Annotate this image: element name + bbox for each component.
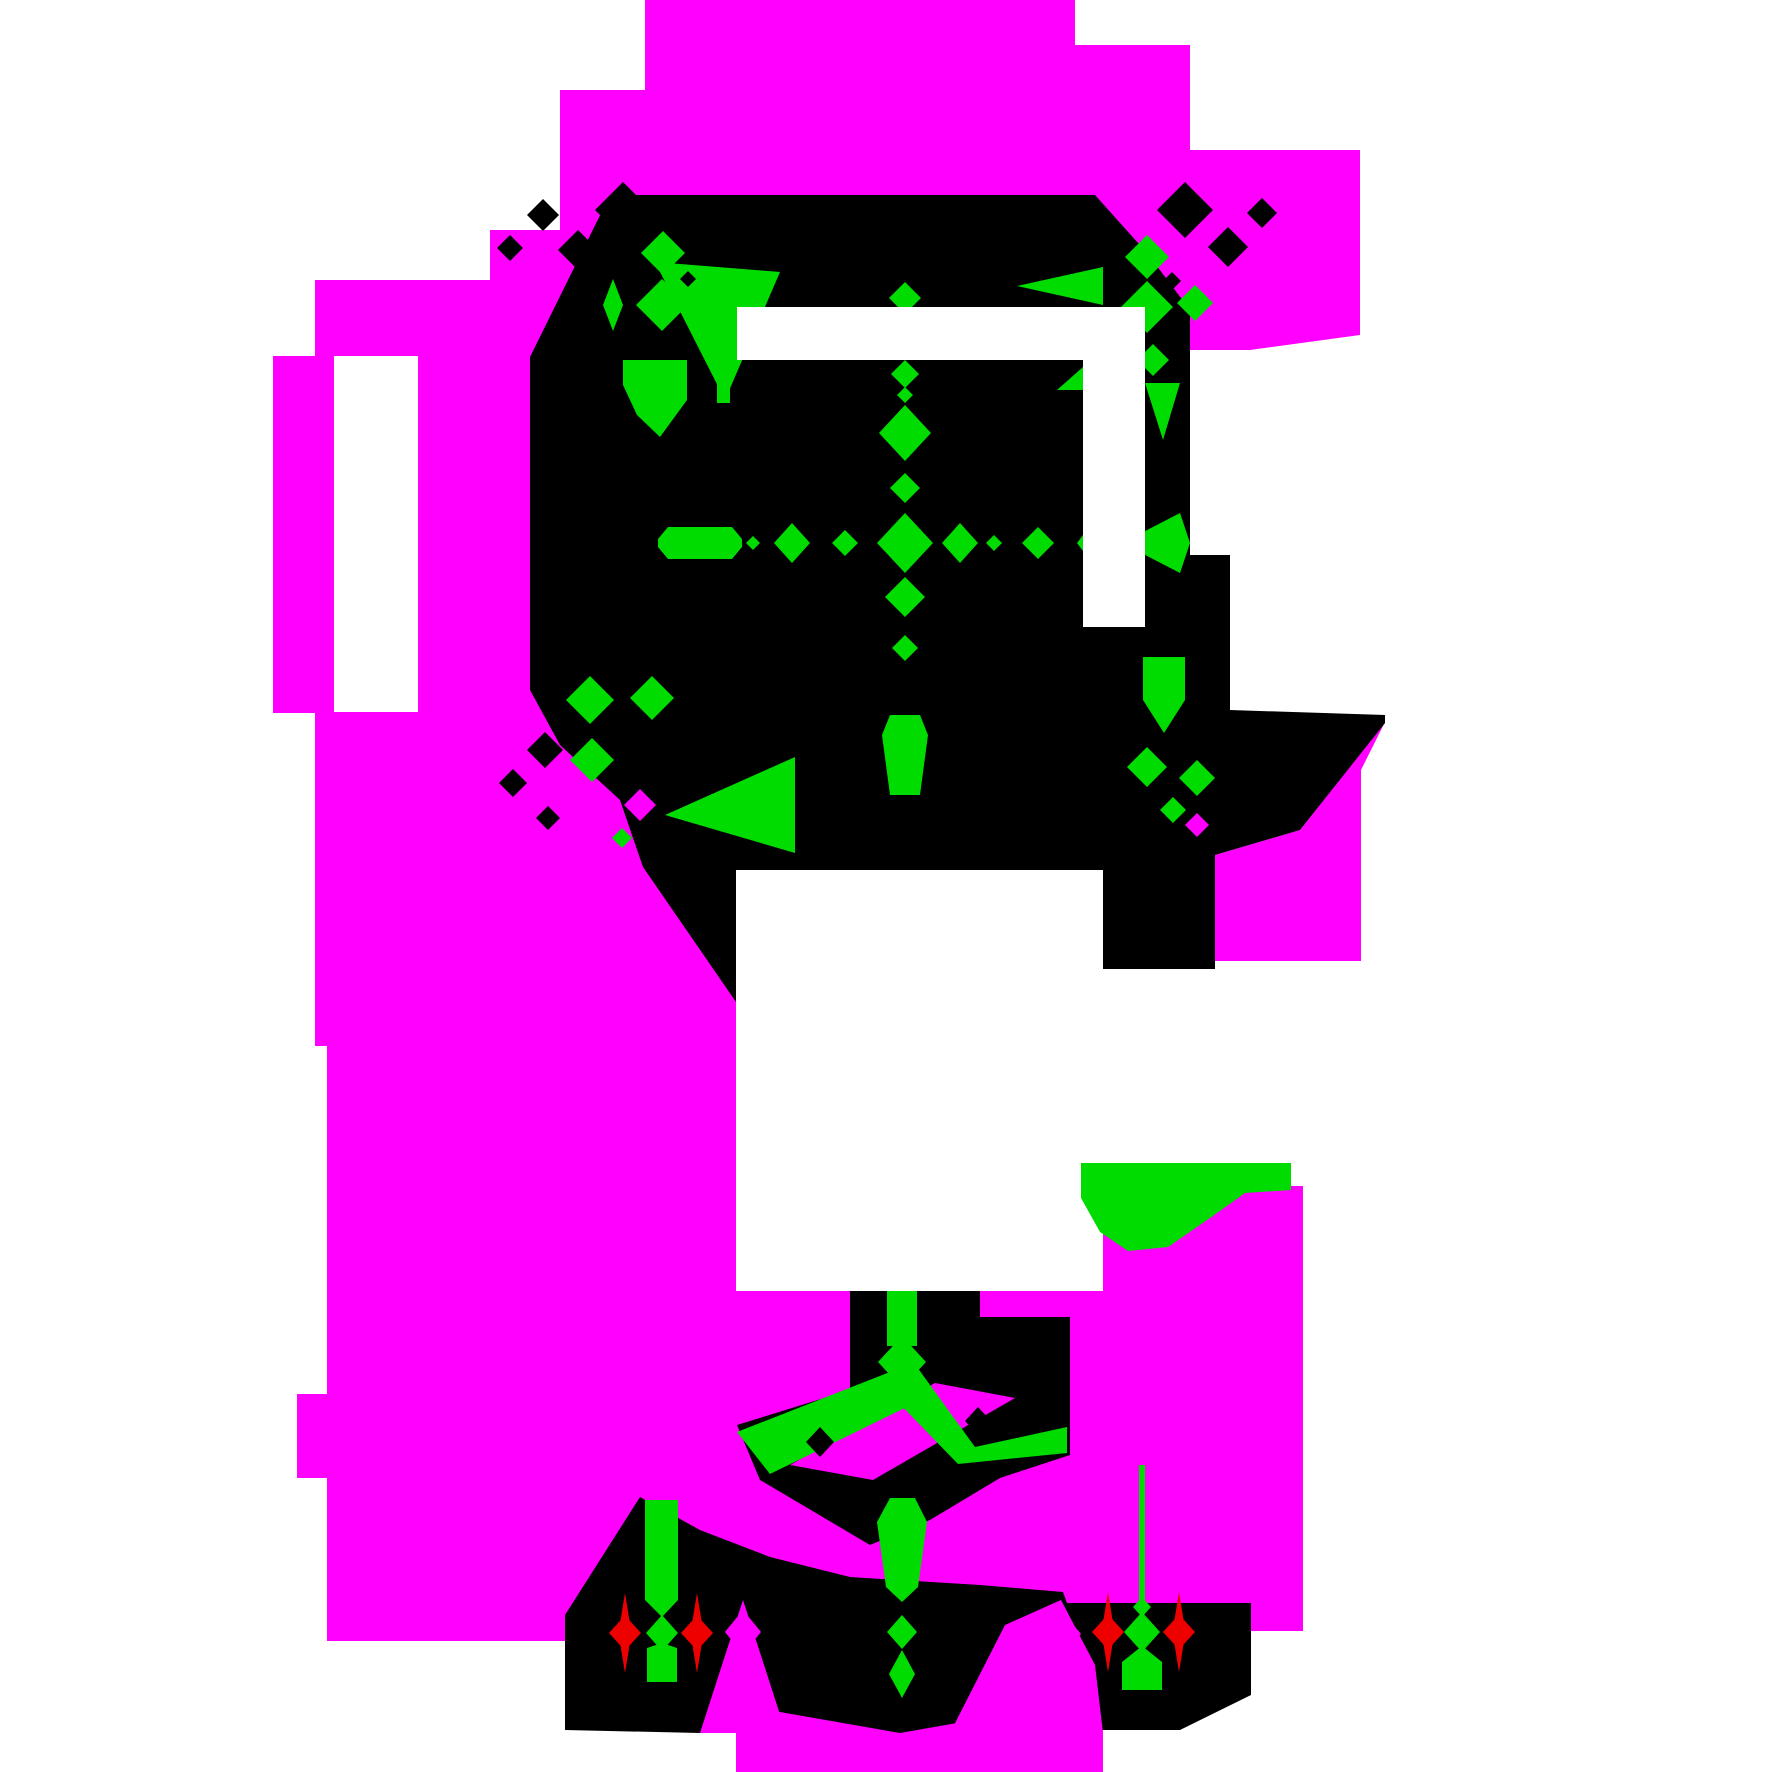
white-corner-bar-horizontal: [737, 307, 1103, 360]
green-thin-line: [1139, 1465, 1145, 1603]
white-corner-bar-vertical: [1083, 307, 1145, 627]
white-left-bar: [334, 356, 418, 712]
green-leftcluster-stripe: [645, 1500, 678, 1617]
green-cross-pill: [882, 715, 928, 795]
abstract-glitch-artwork: [0, 0, 1772, 1772]
white-opening-main: [736, 870, 1103, 1291]
glitch-art-stage: [0, 0, 1772, 1772]
magenta-bottom-right: [1078, 1186, 1303, 1631]
green-leftcluster-stripe2: [647, 1643, 677, 1682]
green-row-pill: [658, 527, 742, 559]
white-opening-right: [1103, 969, 1365, 1186]
